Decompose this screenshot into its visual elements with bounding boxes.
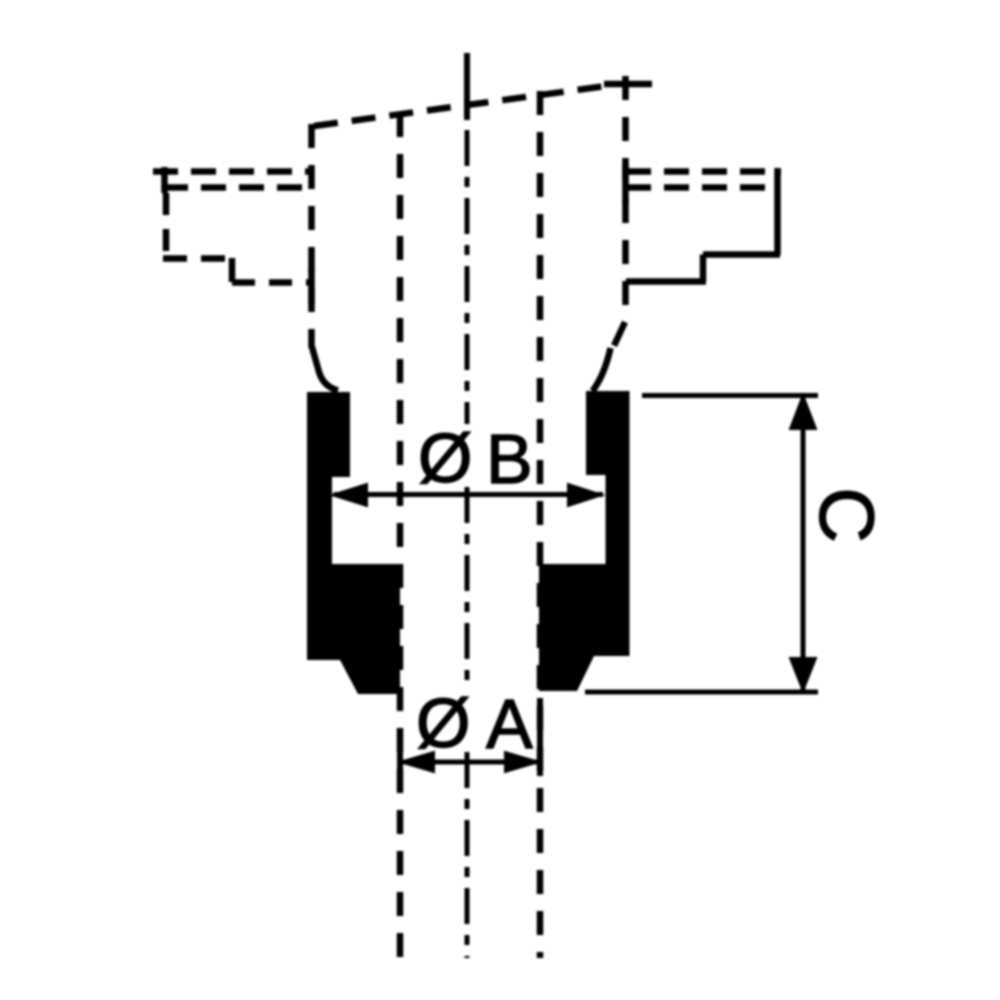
svg-text:Ø: Ø: [418, 419, 472, 497]
svg-text:B: B: [486, 420, 533, 498]
svg-text:C: C: [803, 487, 889, 543]
svg-text:Ø: Ø: [416, 684, 470, 762]
svg-text:A: A: [486, 685, 533, 763]
